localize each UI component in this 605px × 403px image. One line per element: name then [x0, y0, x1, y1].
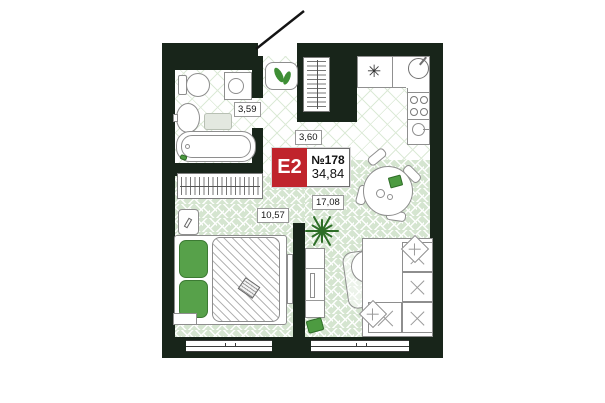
- window-living: [311, 340, 409, 352]
- wall-top-left: [162, 43, 258, 56]
- hanger-rail: [180, 186, 260, 187]
- plant-icon: [305, 214, 339, 248]
- sink-tap: [173, 114, 178, 122]
- floorplan: ✳: [162, 43, 443, 358]
- kitchen-sink: [408, 58, 429, 79]
- burner: [410, 96, 418, 104]
- floorplan-canvas: ✳: [0, 0, 605, 403]
- tv-living: [310, 273, 315, 298]
- burner: [420, 108, 428, 116]
- wall-top-right: [297, 43, 443, 56]
- sofa-cushion: [402, 272, 433, 302]
- tv-console: [305, 248, 325, 318]
- unit-badge[interactable]: E2 №178 34,84: [272, 148, 350, 187]
- table-plate: [376, 189, 385, 198]
- unit-type-label: E2: [272, 148, 307, 187]
- hall-closet-hangers: [303, 57, 330, 112]
- burner: [410, 108, 418, 116]
- kitchen-appliance: [412, 123, 425, 136]
- bath-mat: [204, 113, 232, 130]
- console-divider: [306, 300, 324, 301]
- burner: [420, 96, 428, 104]
- bathroom-sink: [176, 103, 200, 133]
- shoes-icon: [266, 63, 297, 89]
- toilet-bowl: [186, 73, 210, 97]
- bathtub-drain: [185, 144, 190, 149]
- bathtub-inner: [181, 135, 251, 158]
- nightstand: [178, 209, 199, 235]
- bed-bench: [173, 313, 197, 325]
- unit-info: №178 34,84: [307, 148, 350, 187]
- room-label-living: 17,08: [312, 195, 344, 210]
- wall-bathroom-right-upper: [252, 56, 263, 98]
- unit-total-area: 34,84: [312, 167, 345, 181]
- hanger-rail: [317, 60, 318, 109]
- hob-asterisk-icon: ✳: [367, 63, 381, 80]
- table-book: [388, 175, 403, 189]
- bed-pillow: [179, 240, 208, 278]
- room-label-hallway: 3,60: [295, 130, 322, 145]
- bedroom-wardrobe-hangers: [177, 173, 263, 199]
- console-divider: [306, 268, 324, 269]
- entrance-door-swing-icon: [250, 9, 314, 55]
- dining-table: [363, 166, 413, 216]
- room-label-bedroom: 10,57: [257, 208, 289, 223]
- washing-machine: [224, 72, 252, 100]
- wall-bathroom-top: [162, 56, 263, 70]
- shoe-bench: [265, 62, 298, 90]
- wall-partition-bedroom-living: [293, 223, 305, 337]
- bathtub: [176, 131, 256, 162]
- sofa-cushion: [402, 302, 433, 333]
- stove: [407, 92, 430, 120]
- pen-item: [184, 218, 192, 229]
- window-bedroom: [186, 340, 272, 352]
- washer-drum: [228, 78, 244, 94]
- counter-divider: [392, 57, 393, 87]
- table-cup: [387, 194, 393, 200]
- room-label-bathroom: 3,59: [234, 102, 261, 117]
- tv-bedroom: [287, 254, 293, 304]
- appliance-spout: [423, 129, 429, 130]
